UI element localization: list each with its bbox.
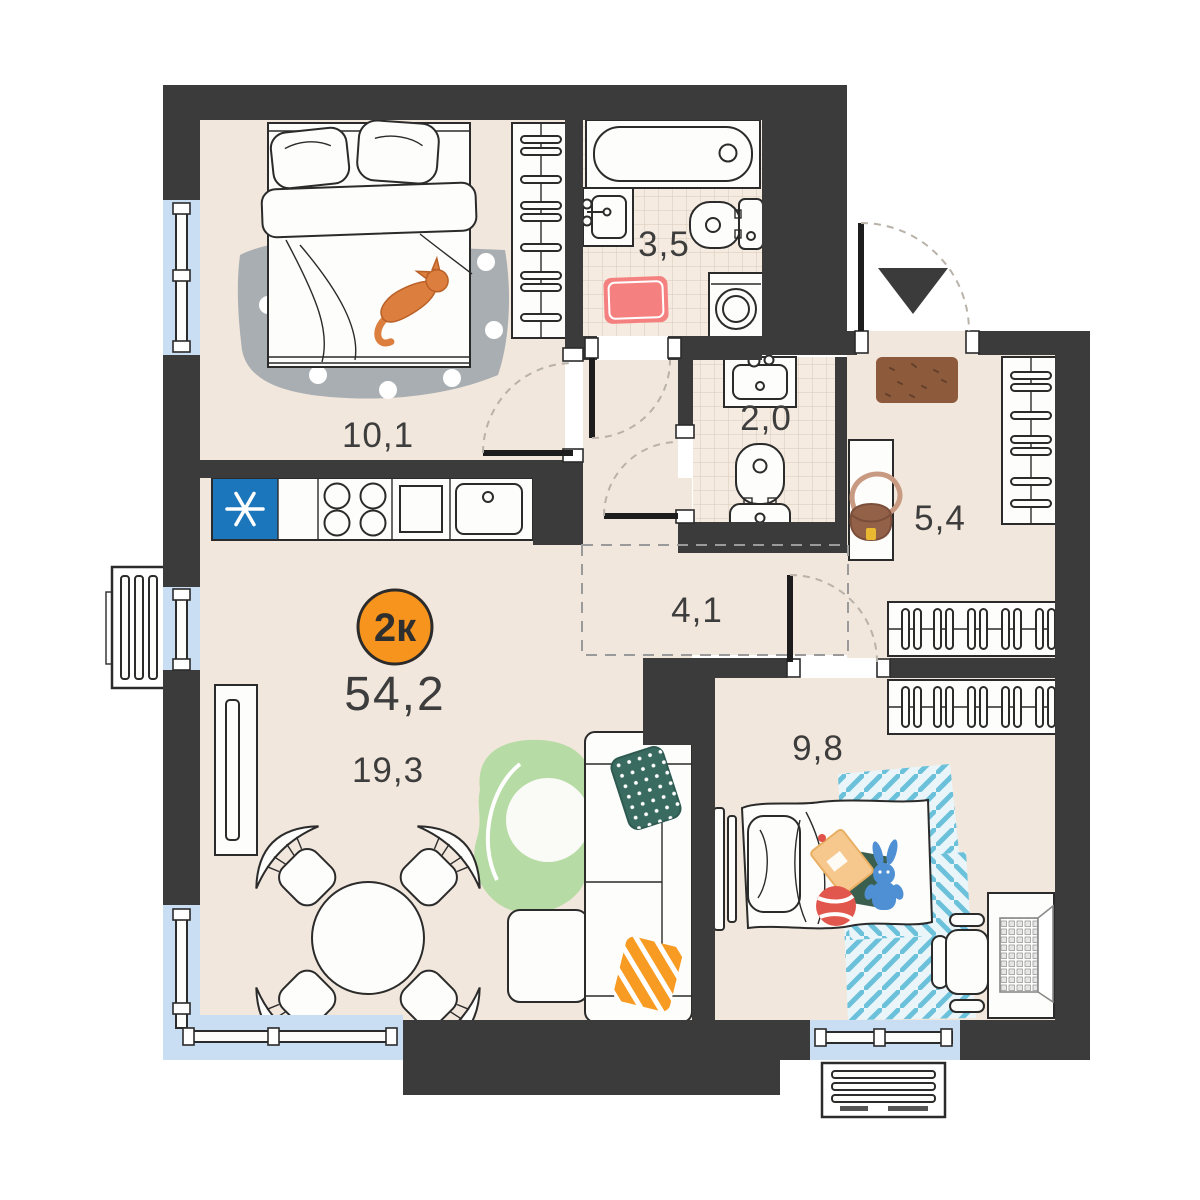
hall-rack <box>888 602 1058 656</box>
kids-area-label: 9,8 <box>792 729 844 768</box>
corridor-area-label: 4,1 <box>671 591 723 630</box>
red-dot-icon <box>818 834 826 842</box>
ball-icon <box>816 886 856 926</box>
unit-type-label: 2к <box>374 606 417 650</box>
living-area-label: 19,3 <box>352 751 424 790</box>
kids-rack <box>888 680 1058 734</box>
ac-unit-left <box>106 567 166 688</box>
bedroom-window <box>163 200 200 355</box>
ac-unit-bottom <box>822 1063 945 1117</box>
tv-console <box>215 685 257 855</box>
washing-machine <box>709 273 763 339</box>
wc-area-label: 2,0 <box>740 399 792 438</box>
wc-toilet <box>730 444 790 532</box>
living-window-left <box>163 587 200 670</box>
kids-window <box>810 1020 960 1060</box>
living-rug <box>474 740 594 913</box>
desk <box>988 893 1054 1018</box>
hall-wardrobe <box>1002 357 1060 524</box>
hall-console <box>849 440 900 560</box>
bedroom-wardrobe <box>512 123 570 338</box>
floor-plan-canvas: 10,1 3,5 2,0 5,4 4,1 19,3 9,8 2к 54,2 <box>0 0 1200 1200</box>
doormat <box>876 357 958 403</box>
bath-rug <box>603 276 669 324</box>
ottoman <box>508 910 588 1002</box>
hallway-area-label: 5,4 <box>914 499 966 538</box>
kitchen-counter <box>212 478 533 540</box>
bathroom-toilet <box>690 199 763 249</box>
bathroom-area-label: 3,5 <box>638 225 690 264</box>
bathtub <box>586 120 760 188</box>
kids-bed <box>714 800 932 930</box>
bedroom-area-label: 10,1 <box>342 416 414 455</box>
laptop-icon <box>1000 906 1053 1002</box>
floor-plan-page: 10,1 3,5 2,0 5,4 4,1 19,3 9,8 2к 54,2 <box>0 0 1200 1200</box>
double-bed <box>261 119 477 367</box>
triangle-down-icon <box>878 268 948 314</box>
bathroom-sink <box>583 188 634 246</box>
total-area-label: 54,2 <box>344 668 445 721</box>
